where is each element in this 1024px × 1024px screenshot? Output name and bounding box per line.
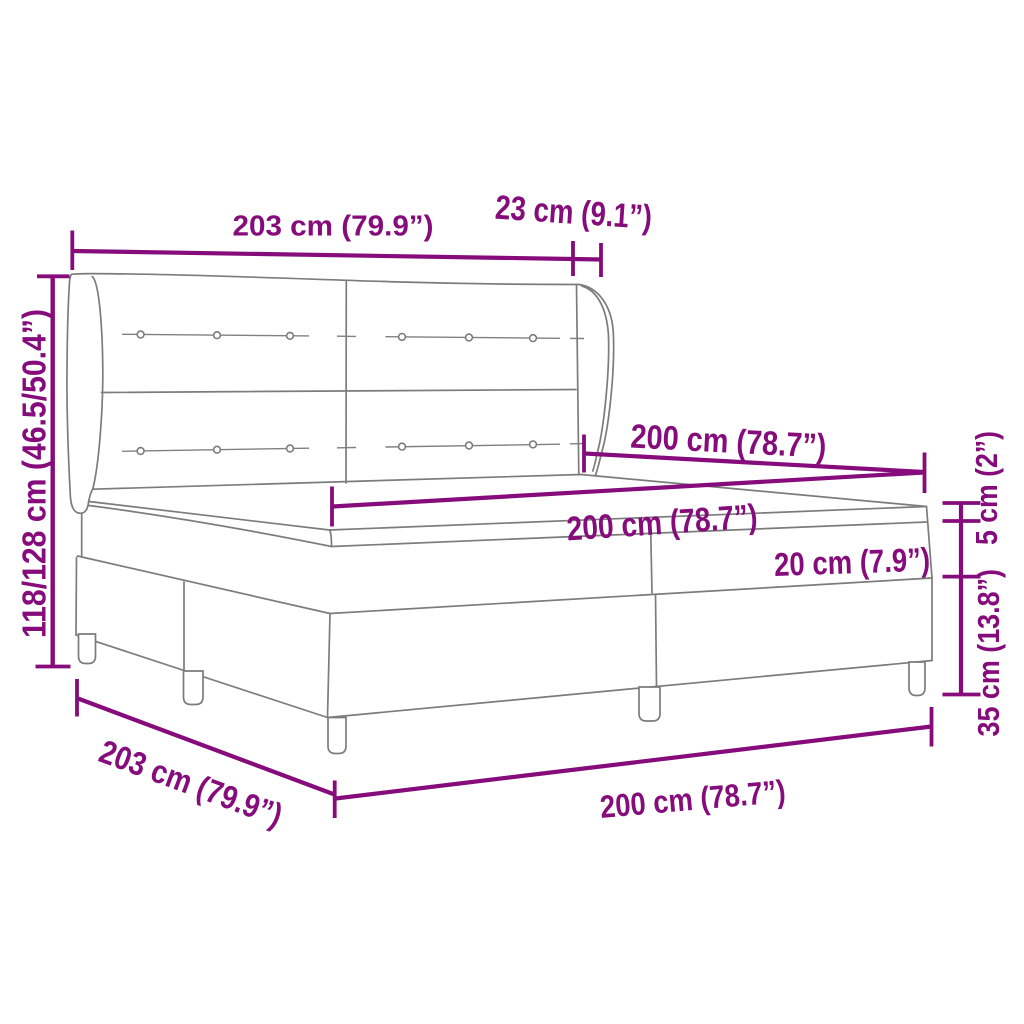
svg-text:35 cm (13.8”): 35 cm (13.8”) <box>971 569 1006 737</box>
svg-text:5 cm (2”): 5 cm (2”) <box>969 431 1004 545</box>
svg-text:203 cm (79.9”): 203 cm (79.9”) <box>233 211 434 243</box>
svg-text:118/128 cm (46.5/50.4”): 118/128 cm (46.5/50.4”) <box>16 309 53 638</box>
svg-text:20 cm (7.9”): 20 cm (7.9”) <box>773 541 930 583</box>
